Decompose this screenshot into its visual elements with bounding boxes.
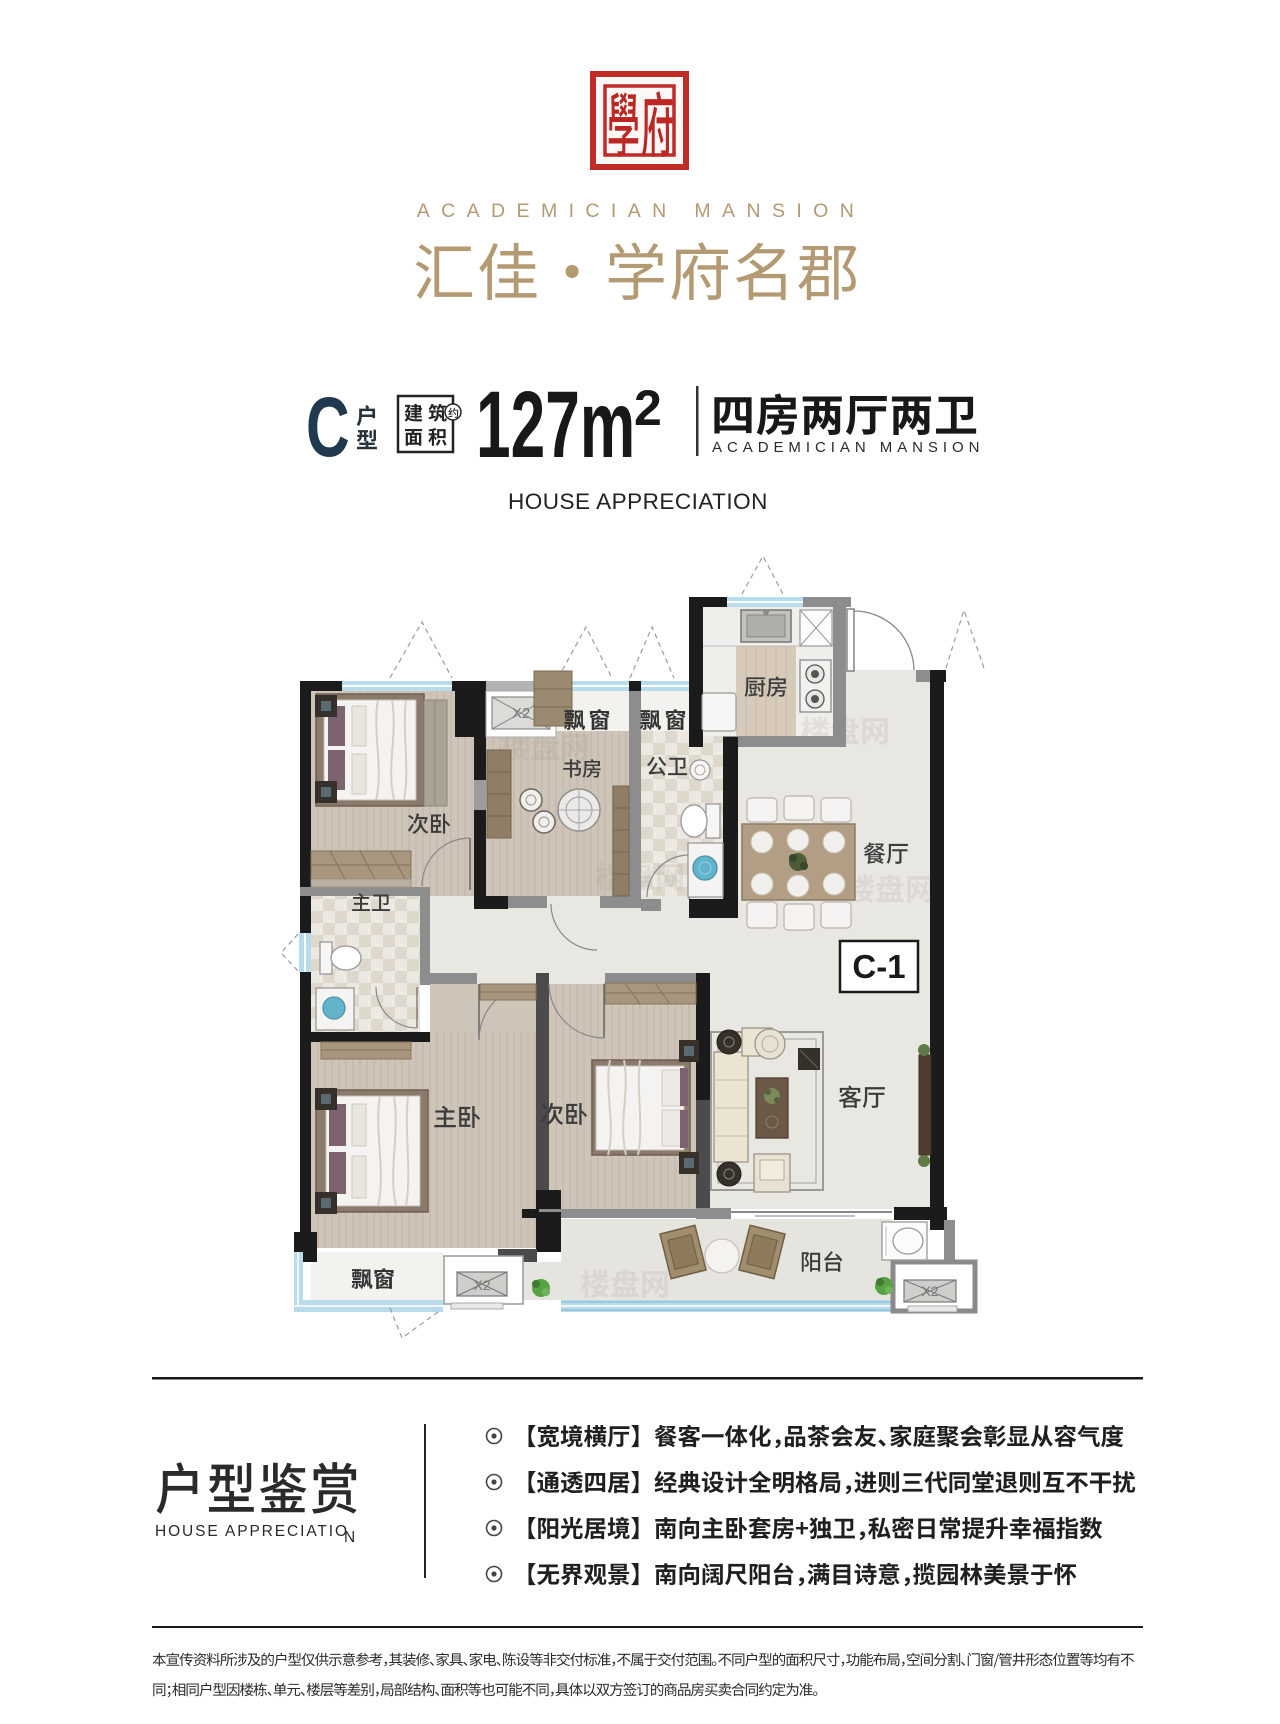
svg-text:N: N <box>344 1529 355 1546</box>
svg-text:X2: X2 <box>473 1277 490 1293</box>
svg-text:ACADEMICIAN MANSION: ACADEMICIAN MANSION <box>712 439 984 456</box>
svg-text:C: C <box>306 380 350 474</box>
svg-text:HOUSE APPRECIATIO: HOUSE APPRECIATIO <box>155 1523 349 1540</box>
svg-text:X2: X2 <box>921 1283 938 1299</box>
svg-text:127m: 127m <box>476 372 635 478</box>
svg-text:ACADEMICIAN MANSION: ACADEMICIAN MANSION <box>417 200 865 222</box>
svg-text:HOUSE APPRECIATION: HOUSE APPRECIATION <box>508 489 768 514</box>
svg-text:C-1: C-1 <box>852 948 905 985</box>
svg-text:X2: X2 <box>512 705 530 722</box>
svg-text:2: 2 <box>634 380 662 436</box>
